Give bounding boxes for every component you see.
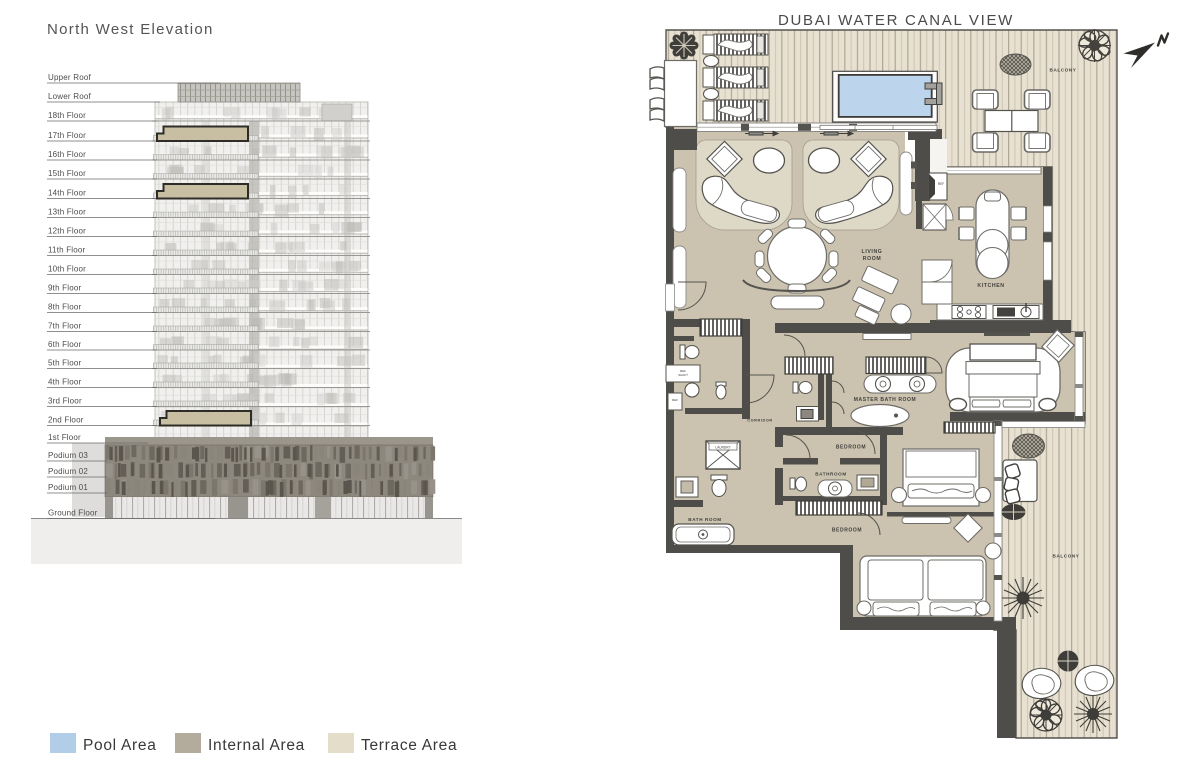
svg-text:CORRIDOR: CORRIDOR: [747, 419, 772, 423]
svg-text:BEDROOM: BEDROOM: [832, 528, 862, 534]
svg-text:2nd Floor: 2nd Floor: [48, 416, 84, 425]
svg-text:16th Floor: 16th Floor: [48, 150, 86, 159]
svg-text:BEDROOM: BEDROOM: [836, 445, 866, 451]
svg-text:18th Floor: 18th Floor: [48, 111, 86, 120]
svg-text:DUBAI WATER CANAL VIEW: DUBAI WATER CANAL VIEW: [778, 12, 1014, 29]
svg-text:7th Floor: 7th Floor: [48, 322, 82, 331]
svg-text:Upper Roof: Upper Roof: [48, 73, 91, 82]
svg-text:BALCONY: BALCONY: [1053, 554, 1080, 559]
svg-text:KITCHEN: KITCHEN: [977, 283, 1004, 289]
svg-text:Ground Floor: Ground Floor: [48, 509, 98, 518]
svg-text:BALCONY: BALCONY: [1050, 68, 1077, 73]
svg-text:13th Floor: 13th Floor: [48, 208, 86, 217]
svg-text:12th Floor: 12th Floor: [48, 227, 86, 236]
svg-text:6th Floor: 6th Floor: [48, 340, 82, 349]
svg-text:LIVING: LIVING: [862, 249, 883, 255]
svg-text:REF: REF: [672, 398, 678, 402]
svg-text:4th Floor: 4th Floor: [48, 378, 82, 387]
svg-text:Podium 02: Podium 02: [48, 467, 88, 476]
svg-text:MASTER BATH ROOM: MASTER BATH ROOM: [854, 397, 917, 403]
svg-text:1st Floor: 1st Floor: [48, 433, 81, 442]
svg-text:Internal Area: Internal Area: [208, 737, 305, 754]
svg-text:15th Floor: 15th Floor: [48, 169, 86, 178]
svg-text:Podium 01: Podium 01: [48, 483, 88, 492]
svg-text:North West Elevation: North West Elevation: [47, 21, 214, 38]
svg-text:3rd Floor: 3rd Floor: [48, 397, 82, 406]
svg-text:ROOM: ROOM: [863, 256, 882, 262]
svg-text:LAUNDRY: LAUNDRY: [715, 445, 731, 449]
svg-text:14th Floor: 14th Floor: [48, 189, 86, 198]
svg-text:10th Floor: 10th Floor: [48, 265, 86, 274]
svg-text:8th Floor: 8th Floor: [48, 303, 82, 312]
svg-text:11th Floor: 11th Floor: [48, 246, 86, 255]
svg-text:5th Floor: 5th Floor: [48, 359, 82, 368]
svg-text:SHAFT: SHAFT: [678, 373, 688, 377]
svg-text:Pool Area: Pool Area: [83, 737, 157, 754]
svg-text:Lower Roof: Lower Roof: [48, 92, 91, 101]
svg-text:BATHROOM: BATHROOM: [815, 472, 847, 477]
svg-text:Podium 03: Podium 03: [48, 451, 88, 460]
svg-text:REF: REF: [938, 182, 944, 186]
svg-text:Terrace Area: Terrace Area: [361, 737, 457, 754]
svg-text:17th Floor: 17th Floor: [48, 131, 86, 140]
svg-text:BATH ROOM: BATH ROOM: [688, 517, 721, 522]
svg-text:9th Floor: 9th Floor: [48, 284, 82, 293]
